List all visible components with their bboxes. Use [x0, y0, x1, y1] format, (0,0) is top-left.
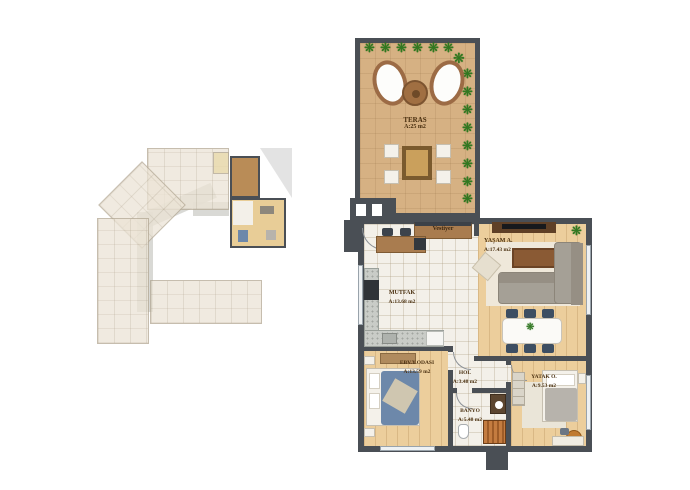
wall — [506, 382, 511, 446]
sofa-chaise — [554, 242, 582, 304]
plant-icon: ❋ — [526, 323, 534, 333]
bath-vanity — [490, 394, 506, 414]
plant-icon: ❋ — [412, 42, 423, 55]
wall — [472, 388, 508, 393]
overview-roof — [260, 148, 292, 198]
kitchen-appliance — [414, 238, 426, 250]
pillow — [369, 373, 380, 389]
terrace-chair — [436, 144, 451, 158]
sofa-back — [571, 243, 583, 305]
bed-single — [542, 370, 578, 422]
nightstand — [578, 373, 586, 384]
fridge — [426, 331, 444, 346]
plant-icon: ❋ — [462, 86, 473, 99]
vestibule-box — [372, 204, 382, 216]
duvet — [545, 388, 577, 421]
kitchen-sink — [382, 333, 397, 344]
nightstand — [364, 356, 375, 365]
plant-icon: ❋ — [571, 225, 582, 238]
overview-unit-sofa — [260, 206, 274, 214]
plant-icon: ❋ — [462, 176, 473, 189]
wardrobe — [512, 372, 525, 406]
plant-icon: ❋ — [462, 140, 473, 153]
shower — [483, 420, 506, 444]
wall — [448, 370, 453, 452]
nightstand — [364, 428, 375, 437]
kitchen-counter — [364, 268, 379, 332]
plant-icon: ❋ — [462, 193, 473, 206]
dining-chair — [542, 344, 554, 353]
dining-chair — [524, 309, 536, 318]
toilet — [458, 424, 469, 439]
shaft — [486, 448, 508, 470]
coffee-table — [512, 248, 556, 268]
desk-chair — [560, 428, 569, 435]
overview-wing-bottom — [150, 280, 262, 324]
terrace-chair — [384, 170, 399, 184]
wall — [474, 222, 479, 236]
desk — [552, 436, 584, 446]
plant-icon: ❋ — [462, 122, 473, 135]
overview-unit-kitchen — [233, 201, 253, 225]
overview-plan — [95, 140, 295, 325]
pillow — [546, 374, 575, 386]
wall — [474, 356, 586, 361]
terrace-chair — [384, 144, 399, 158]
plant-icon: ❋ — [380, 42, 391, 55]
apartment-plan: ❋ ❋ ❋ ❋ ❋ ❋ ❋ ❋ ❋ ❋ ❋ ❋ ❋ ❋ ❋ TERAS A:25… — [340, 30, 610, 480]
plant-icon: ❋ — [428, 42, 439, 55]
dining-chair — [542, 309, 554, 318]
bed-master — [366, 368, 420, 426]
overview-highlighted-terrace — [230, 156, 260, 198]
sink — [495, 401, 503, 409]
overview-wing-left — [97, 218, 149, 344]
dining-chair — [506, 344, 518, 353]
terrace-chair — [436, 170, 451, 184]
cooktop — [364, 280, 379, 300]
tv-unit — [492, 222, 556, 233]
plant-icon: ❋ — [462, 158, 473, 171]
entry-wall-stub — [344, 220, 358, 252]
plant-icon: ❋ — [364, 42, 375, 55]
overview-unit-bed2 — [266, 230, 276, 240]
dresser — [380, 353, 416, 364]
kitchen-chair — [400, 228, 411, 236]
vestibule-box — [356, 204, 366, 216]
plant-icon: ❋ — [462, 104, 473, 117]
overview-small-unit — [213, 152, 229, 174]
tv — [502, 224, 546, 229]
terrace-table — [402, 146, 432, 180]
window — [358, 265, 363, 325]
kitchen-chair — [382, 228, 393, 236]
pillow — [369, 393, 380, 409]
window — [586, 375, 591, 430]
terrace-round-table — [402, 80, 428, 106]
floor-plan-page: ❋ ❋ ❋ ❋ ❋ ❋ ❋ ❋ ❋ ❋ ❋ ❋ ❋ ❋ ❋ TERAS A:25… — [0, 0, 690, 490]
dining-chair — [506, 309, 518, 318]
dining-chair — [524, 344, 536, 353]
overview-highlighted-unit — [230, 198, 286, 248]
window — [586, 245, 591, 315]
window — [380, 446, 435, 451]
plant-icon: ❋ — [396, 42, 407, 55]
table-decor — [412, 90, 420, 98]
overview-unit-bed — [238, 230, 248, 242]
